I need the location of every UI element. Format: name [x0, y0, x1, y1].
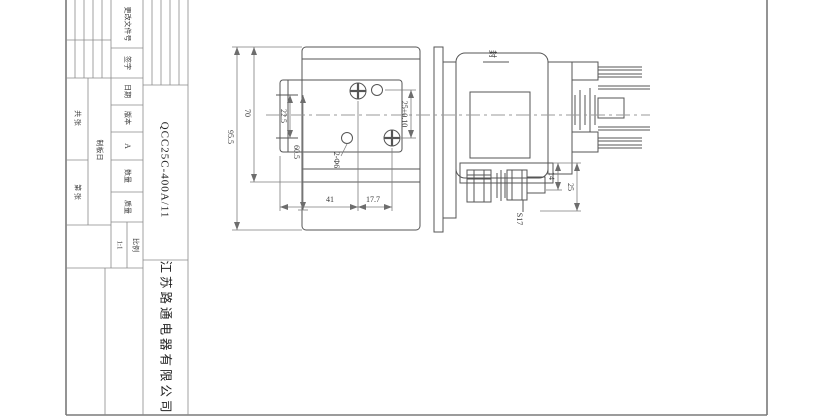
- titleblock-quantity-label: 数量: [124, 169, 131, 183]
- dim-height-70: 70: [243, 109, 251, 117]
- spacer: [443, 62, 456, 218]
- company-name: 江苏路通电器有限公司: [159, 260, 172, 415]
- titleblock-date: 日期: [124, 84, 131, 98]
- dim-side-14: 14: [547, 172, 555, 180]
- dim-side-25: 25: [566, 183, 574, 191]
- cross-screw: [384, 130, 400, 146]
- front-view: [276, 47, 420, 230]
- mounting-hole: [372, 85, 383, 96]
- coil-window: [470, 92, 530, 158]
- titleblock-plate-date: 制板日: [96, 140, 103, 161]
- mounting-hole: [342, 133, 353, 144]
- dim-overall-height: 95.5: [226, 130, 234, 144]
- titleblock-version-value: A: [123, 143, 131, 149]
- titleblock-mass-label: 质量: [124, 200, 131, 214]
- titleblock-scale-value: 1:1: [116, 241, 123, 250]
- dim-width-17-7: 17.7: [366, 196, 380, 204]
- dim-pitch-25: 25±0.10: [400, 101, 408, 127]
- titleblock-scale-label: 比例: [132, 238, 139, 252]
- dim-height-60-5: 60.5: [292, 145, 300, 159]
- titleblock-signature: 签字: [124, 56, 131, 70]
- dim-width-41: 41: [326, 196, 334, 204]
- drawing-sheet: 更改文件号 签字 日期 版本 A 数量 质量 比例 1:1 制板日 共 张 第 …: [0, 0, 840, 420]
- seal-mark: 封: [488, 50, 496, 58]
- main-stud-terminal: [575, 86, 650, 132]
- mounting-plate-side: [434, 47, 443, 232]
- titleblock-sheet-no: 第 张: [74, 184, 81, 200]
- dim-hex-s17: S17: [515, 213, 523, 225]
- titleblock-change-doc-no: 更改文件号: [124, 7, 131, 42]
- through-bolt: [467, 170, 491, 202]
- terminal-block: [548, 62, 572, 174]
- dim-height-22-5: 22.5: [279, 109, 287, 123]
- hex-bolt: [497, 170, 545, 201]
- dim-holes-label: 2-Φ6: [332, 152, 340, 169]
- titleblock-version-label: 版本: [124, 111, 131, 125]
- part-number: QCC25C-400A/11: [159, 122, 170, 219]
- titleblock-sheets-total: 共 张: [74, 110, 81, 126]
- side-view: [434, 47, 650, 232]
- contactor-body-front: [280, 80, 402, 152]
- cross-screw: [350, 83, 366, 99]
